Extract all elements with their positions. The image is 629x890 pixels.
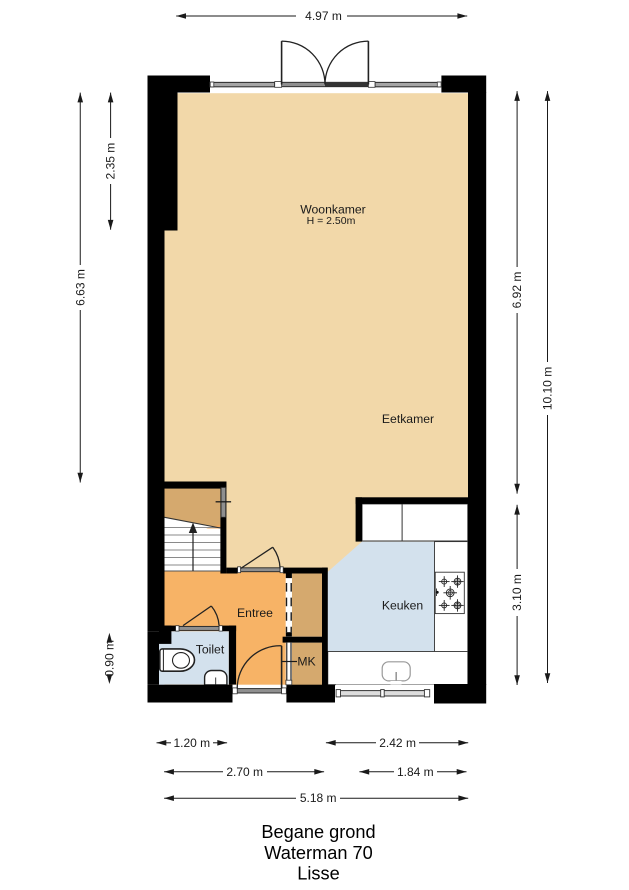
svg-text:1.20 m: 1.20 m	[173, 736, 210, 750]
svg-text:2.35 m: 2.35 m	[104, 143, 118, 180]
svg-text:Lisse: Lisse	[297, 864, 339, 884]
svg-text:1.84 m: 1.84 m	[397, 765, 434, 779]
svg-text:6.92 m: 6.92 m	[510, 272, 524, 309]
svg-text:Keuken: Keuken	[382, 599, 423, 613]
svg-text:5.18 m: 5.18 m	[300, 791, 337, 805]
svg-text:Waterman 70: Waterman 70	[264, 843, 373, 863]
svg-text:Eetkamer: Eetkamer	[382, 412, 434, 426]
svg-text:3.10 m: 3.10 m	[510, 574, 524, 611]
svg-text:10.10 m: 10.10 m	[541, 367, 555, 410]
svg-text:H = 2.50m: H = 2.50m	[307, 215, 356, 227]
svg-text:4.97 m: 4.97 m	[305, 9, 342, 23]
svg-text:Entree: Entree	[237, 606, 273, 620]
svg-text:0.90 m: 0.90 m	[102, 640, 116, 677]
svg-text:6.63 m: 6.63 m	[73, 269, 87, 306]
svg-text:2.42 m: 2.42 m	[379, 736, 416, 750]
svg-text:MK: MK	[297, 655, 315, 669]
svg-text:2.70 m: 2.70 m	[226, 765, 263, 779]
svg-text:Toilet: Toilet	[196, 643, 225, 657]
svg-text:Begane grond: Begane grond	[261, 822, 375, 842]
